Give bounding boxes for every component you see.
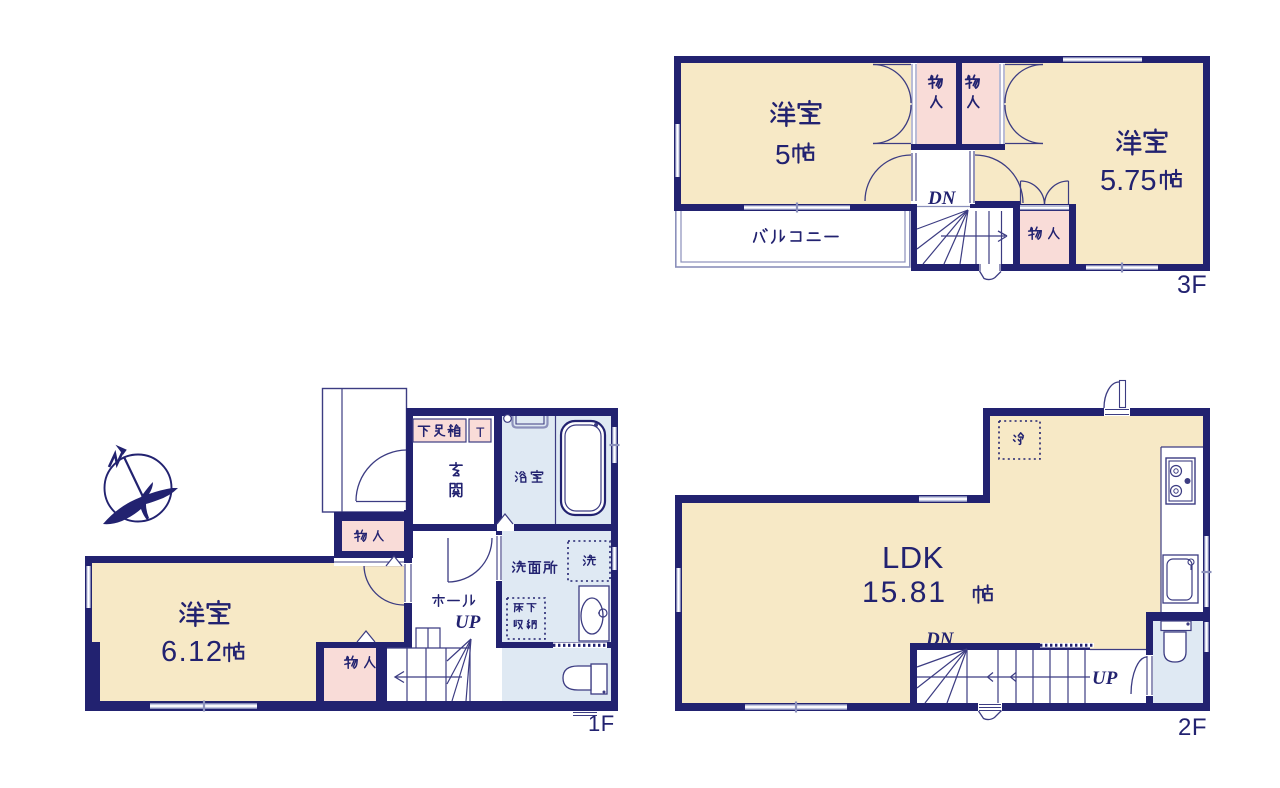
svg-text:2F: 2F bbox=[1178, 714, 1207, 741]
svg-text:6.12: 6.12 bbox=[161, 636, 223, 668]
svg-text:15.81: 15.81 bbox=[862, 576, 947, 609]
svg-text:5.75: 5.75 bbox=[1100, 165, 1156, 197]
svg-text:T: T bbox=[476, 424, 485, 440]
svg-text:LDK: LDK bbox=[882, 540, 944, 575]
svg-text:DN: DN bbox=[925, 629, 955, 650]
svg-text:DN: DN bbox=[927, 188, 957, 209]
svg-text:UP: UP bbox=[455, 612, 481, 633]
svg-text:5: 5 bbox=[775, 139, 791, 170]
svg-text:1F: 1F bbox=[588, 711, 615, 736]
svg-text:UP: UP bbox=[1092, 668, 1118, 689]
svg-text:3F: 3F bbox=[1177, 271, 1207, 299]
